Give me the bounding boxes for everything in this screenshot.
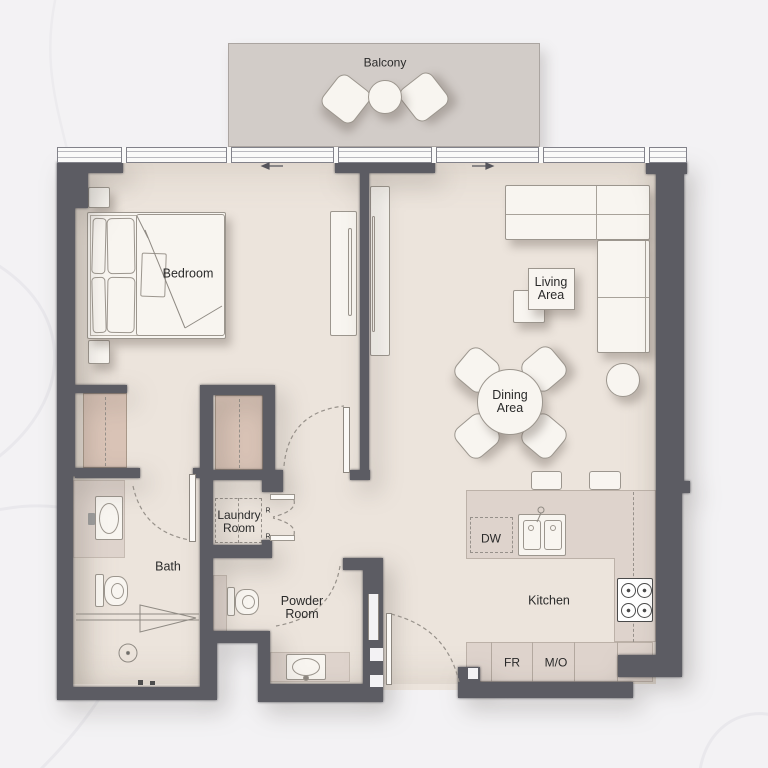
wardrobe-panel-left xyxy=(348,228,352,316)
counter-divider xyxy=(574,642,575,682)
pillow xyxy=(91,218,106,274)
bath-sink xyxy=(95,496,123,540)
side-table xyxy=(606,363,640,397)
window-frame-line xyxy=(58,151,686,152)
wall-pocket-slot xyxy=(368,594,379,640)
wall-closet-right-side xyxy=(263,385,275,478)
laundry-mark-right: R xyxy=(265,534,270,541)
wardrobe-panel-right xyxy=(372,216,375,332)
laundry-door-jamb xyxy=(270,494,295,500)
wall-connector-h xyxy=(200,631,270,643)
counter-divider xyxy=(491,642,492,682)
sink-drain xyxy=(550,525,556,531)
bath-faucet xyxy=(88,513,95,525)
burner xyxy=(637,603,652,618)
kitchen-sink xyxy=(518,514,566,556)
toilet-seat xyxy=(242,595,255,609)
pillow xyxy=(91,277,106,333)
bedroom-door-leaf xyxy=(343,407,350,473)
bath-toilet-tank xyxy=(95,574,104,607)
wall-t-top xyxy=(335,162,435,173)
laundry-room-label-line2: Room xyxy=(217,522,260,535)
floor-mark xyxy=(150,681,155,685)
window-mullion xyxy=(644,147,650,163)
powder-toilet-tank xyxy=(227,587,235,616)
wall-closet-left-top xyxy=(75,385,127,393)
powder-sink-basin xyxy=(292,658,320,676)
bedroom-label: Bedroom xyxy=(163,268,214,281)
bath-sink-basin xyxy=(99,503,119,534)
window-mullion xyxy=(226,147,232,163)
exterior-notch xyxy=(217,643,258,703)
wall-niche xyxy=(370,675,383,687)
wall-middle-vertical xyxy=(360,168,369,472)
burner xyxy=(621,583,636,598)
island-stool xyxy=(589,471,621,490)
nightstand-bottom xyxy=(88,340,110,364)
entry-door-leaf xyxy=(386,613,392,685)
wall-niche xyxy=(370,648,383,661)
wall-left-upper xyxy=(57,162,75,476)
counter-divider xyxy=(532,642,533,682)
dining-area-label: Dining Area xyxy=(492,389,527,415)
powder-room-label-line2: Room xyxy=(281,608,323,621)
laundry-door-jamb xyxy=(270,535,295,541)
microwave-oven-label: M/O xyxy=(545,657,568,670)
sofa-seam xyxy=(645,241,646,352)
balcony-table xyxy=(368,80,402,114)
laundry-room-label: Laundry Room xyxy=(217,509,260,535)
wall-niche xyxy=(468,668,478,679)
sofa-seam xyxy=(598,297,649,298)
powder-toilet-bowl xyxy=(235,589,259,615)
powder-room-label: Powder Room xyxy=(281,595,323,621)
wall-right-upper xyxy=(656,162,684,482)
wall-mid-divider xyxy=(200,385,213,631)
window-mullion xyxy=(538,147,544,163)
dining-area-label-line2: Area xyxy=(492,402,527,415)
wall-bath-top-a xyxy=(75,468,140,478)
sink-drain xyxy=(528,525,534,531)
floor-mark xyxy=(138,680,143,685)
wall-step-bottom-right xyxy=(618,655,682,677)
window-mullion xyxy=(121,147,127,163)
dishwasher-label: DW xyxy=(481,533,501,546)
window-frame-line xyxy=(58,157,686,158)
stove xyxy=(617,578,653,622)
kitchen-label: Kitchen xyxy=(528,595,570,608)
sofa-seam xyxy=(596,186,597,240)
pillow xyxy=(107,277,136,333)
sofa-seam xyxy=(506,214,649,215)
wall-laundry-pillar xyxy=(265,473,281,492)
laundry-mark-left: R xyxy=(265,508,270,515)
burner xyxy=(621,603,636,618)
sofa-top-section xyxy=(505,185,650,240)
closet-right-divider xyxy=(239,399,240,468)
island-stool xyxy=(531,471,562,490)
wall-laundry-piece xyxy=(262,540,272,558)
wall-kitchen-bottom xyxy=(458,682,633,698)
wall-left-lower xyxy=(57,476,73,688)
bath-door-leaf xyxy=(189,474,196,542)
window-mullion xyxy=(431,147,437,163)
wall-bath-bottom xyxy=(57,687,210,700)
floorplan-page: { "rooms": { "balcony": { "label": "Balc… xyxy=(0,0,768,768)
living-area-label: Living Area xyxy=(535,276,568,302)
wall-bath-top-b xyxy=(193,468,213,478)
burner xyxy=(637,583,652,598)
living-area-label-line2: Area xyxy=(535,289,568,302)
powder-vanity-strip xyxy=(213,575,227,633)
powder-sink-tap xyxy=(303,675,309,681)
fridge-label: FR xyxy=(504,657,520,670)
nightstand-top xyxy=(88,187,110,208)
wall-middle-foot xyxy=(350,470,370,480)
window-mullion xyxy=(333,147,339,163)
wall-right-lower xyxy=(656,480,682,657)
pillow xyxy=(107,218,136,274)
toilet-seat xyxy=(111,583,124,599)
wardrobe-unit-left xyxy=(330,211,357,336)
closet-left-divider xyxy=(105,397,106,466)
wall-laundry-bottom xyxy=(200,545,270,558)
window-band xyxy=(57,147,687,163)
bath-label: Bath xyxy=(155,561,181,574)
balcony-label: Balcony xyxy=(364,57,407,70)
bath-toilet-bowl xyxy=(104,576,128,606)
